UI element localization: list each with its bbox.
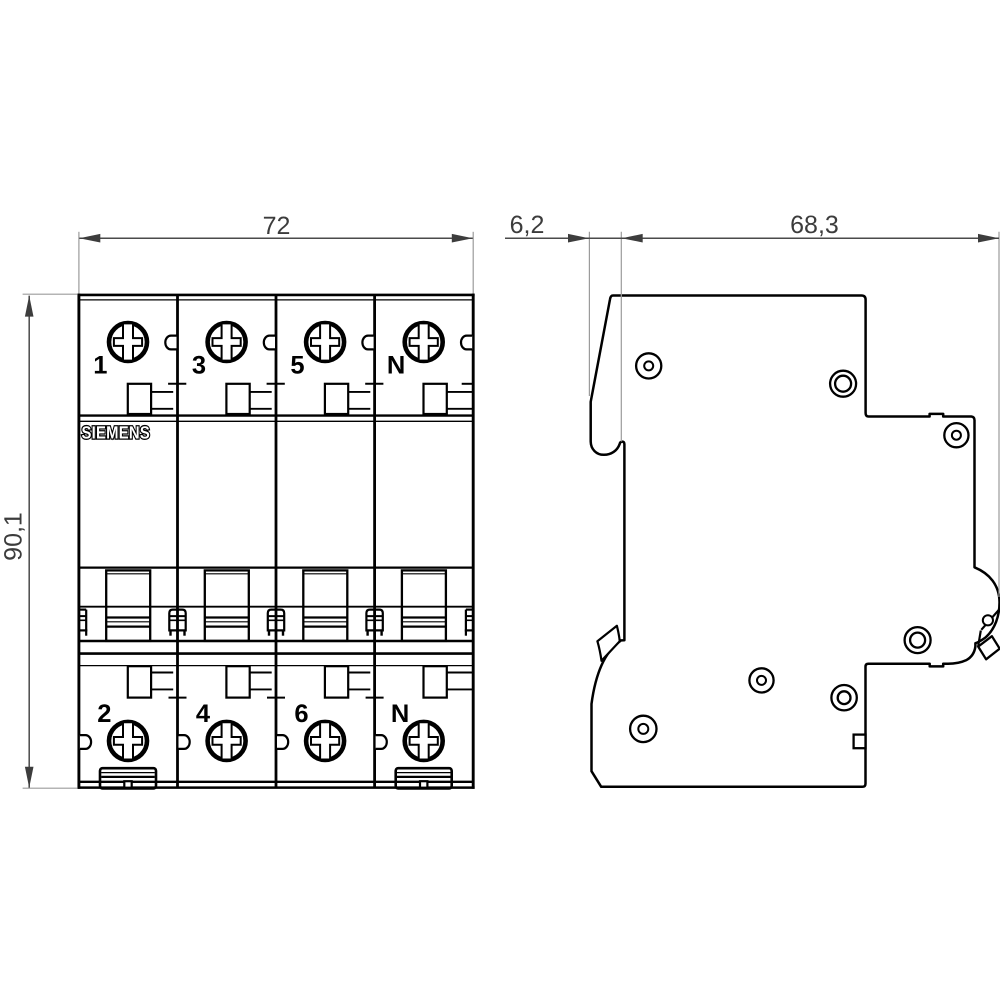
svg-text:5: 5 (290, 351, 304, 379)
svg-text:N: N (391, 700, 409, 728)
svg-text:6: 6 (294, 700, 308, 728)
svg-text:1: 1 (93, 351, 107, 379)
svg-text:6,2: 6,2 (510, 211, 545, 239)
svg-text:90,1: 90,1 (0, 512, 28, 561)
svg-text:SIEMENS: SIEMENS (82, 422, 151, 442)
svg-text:4: 4 (196, 700, 211, 728)
svg-text:68,3: 68,3 (790, 211, 839, 239)
svg-text:N: N (387, 351, 405, 379)
svg-text:2: 2 (97, 700, 111, 728)
svg-text:72: 72 (263, 212, 291, 240)
svg-text:3: 3 (192, 351, 206, 379)
